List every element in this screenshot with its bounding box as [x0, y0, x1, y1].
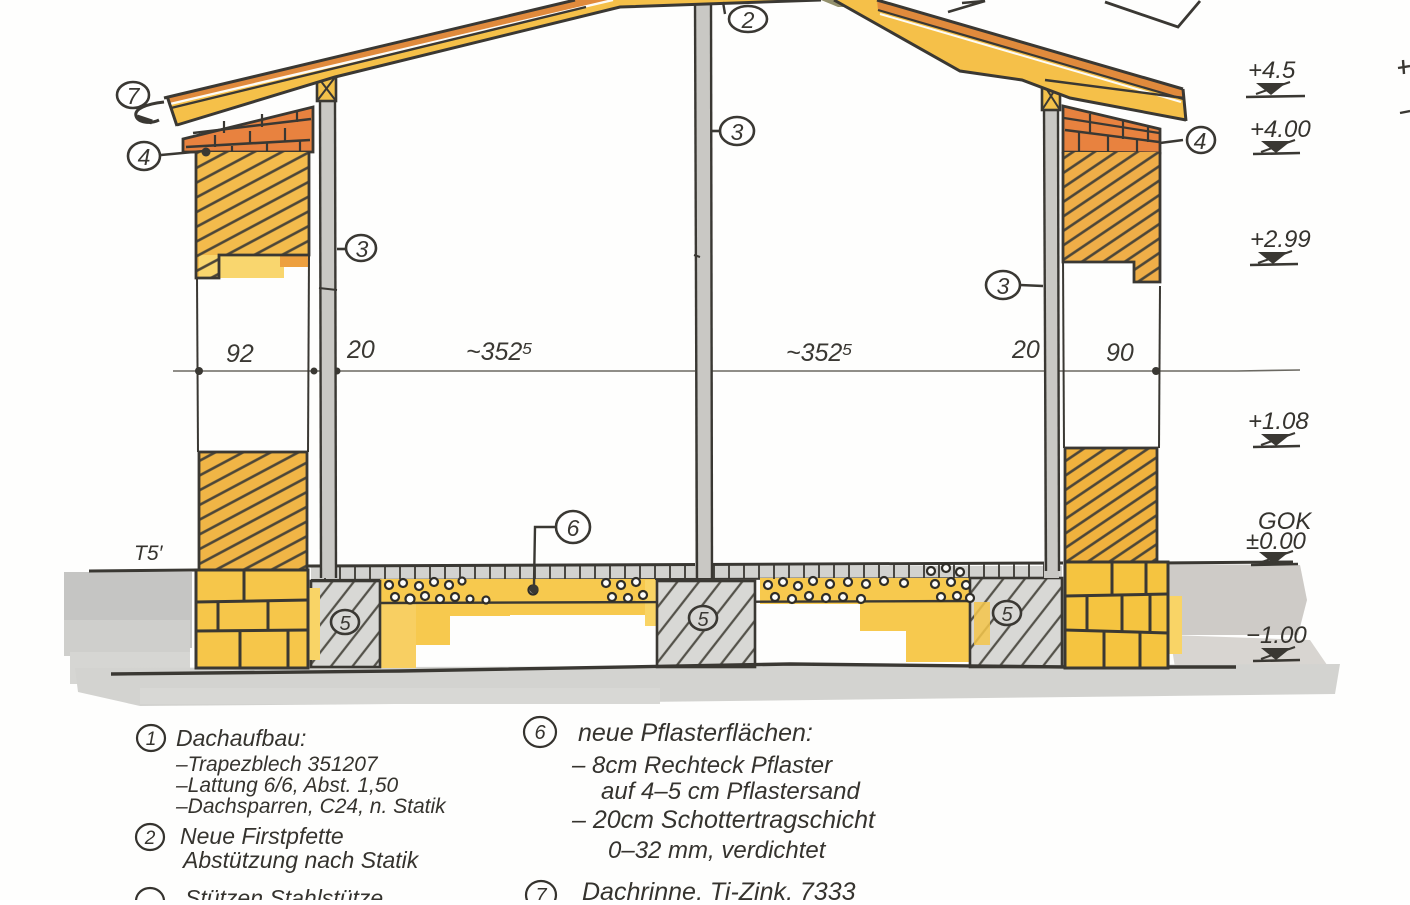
svg-text:Neue Firstpfette: Neue Firstpfette — [180, 823, 344, 849]
svg-text:Abstützung nach Statik: Abstützung nach Statik — [181, 847, 420, 873]
svg-text:neue Pflasterflächen:: neue Pflasterflächen: — [578, 719, 813, 747]
svg-text:–Trapezblech 351207: –Trapezblech 351207 — [175, 753, 379, 776]
svg-text:7: 7 — [127, 83, 141, 109]
svg-text:4: 4 — [138, 144, 151, 170]
svg-text:auf 4–5 cm Pflastersand: auf 4–5 cm Pflastersand — [601, 778, 860, 805]
svg-text:5: 5 — [339, 613, 351, 635]
svg-text:1: 1 — [146, 729, 157, 750]
svg-text:+4.5: +4.5 — [1248, 57, 1296, 84]
svg-text:Stützen Stahlstütze: Stützen Stahlstütze — [185, 885, 383, 900]
svg-text:~352⁵: ~352⁵ — [466, 338, 533, 366]
svg-text:6: 6 — [567, 515, 580, 541]
svg-text:4: 4 — [1194, 128, 1207, 154]
svg-text:– 8cm Rechteck Pflaster: – 8cm Rechteck Pflaster — [571, 752, 833, 779]
svg-text:7: 7 — [535, 885, 547, 900]
svg-text:−1.00: −1.00 — [1246, 622, 1307, 649]
svg-text:±0.00: ±0.00 — [1246, 528, 1307, 555]
svg-text:20: 20 — [1011, 336, 1040, 364]
svg-text:3: 3 — [997, 273, 1010, 299]
svg-text:+4.00: +4.00 — [1250, 116, 1311, 143]
svg-text:90: 90 — [1106, 339, 1134, 367]
svg-text:5: 5 — [697, 609, 709, 631]
svg-text:2: 2 — [741, 7, 755, 33]
svg-text:2: 2 — [144, 828, 156, 849]
svg-text:20: 20 — [346, 336, 375, 364]
svg-text:6: 6 — [534, 722, 546, 744]
svg-text:T5′: T5′ — [134, 542, 164, 565]
svg-text:3: 3 — [356, 236, 369, 262]
svg-text:Dachaufbau:: Dachaufbau: — [176, 725, 306, 751]
svg-text:–Dachsparren, C24, n. Statik: –Dachsparren, C24, n. Statik — [175, 795, 447, 818]
svg-text:–Lattung 6/6, Abst. 1,50: –Lattung 6/6, Abst. 1,50 — [175, 774, 399, 797]
svg-text:– 20cm Schottertragschicht: – 20cm Schottertragschicht — [571, 806, 876, 834]
svg-text:Dachrinne, Ti-Zink, 7333: Dachrinne, Ti-Zink, 7333 — [582, 878, 856, 900]
svg-text:+2.99: +2.99 — [1250, 226, 1311, 253]
svg-text:5: 5 — [1001, 604, 1013, 626]
svg-text:92: 92 — [226, 340, 254, 368]
svg-text:3: 3 — [731, 119, 744, 145]
svg-text:+1.08: +1.08 — [1248, 408, 1309, 435]
svg-text:~352⁵: ~352⁵ — [786, 339, 853, 367]
svg-text:0–32 mm, verdichtet: 0–32 mm, verdichtet — [608, 837, 827, 864]
